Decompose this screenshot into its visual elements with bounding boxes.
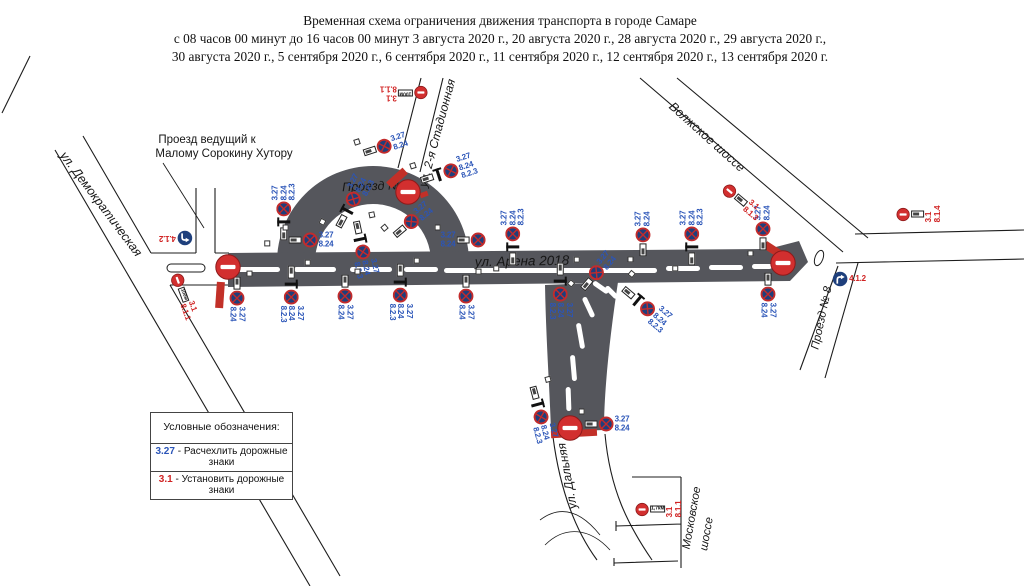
sign-post-marker (264, 240, 270, 246)
sign-code-label: 8.24 (643, 212, 652, 227)
no-entry-sign-icon (770, 250, 797, 277)
no-stopping-sign-icon (303, 233, 318, 248)
no-stopping-sign-icon (459, 289, 474, 304)
sign-code-label: 8.24 (760, 303, 769, 318)
street-label: Проезд ведущий к (158, 134, 255, 146)
info-plate-icon: 100м (178, 286, 190, 302)
sign-code-labels: 3.278.24 (760, 303, 777, 318)
info-plate-icon (342, 275, 349, 288)
info-plate-icon (510, 252, 517, 265)
traffic-sign-cluster: 4.1.2 (159, 230, 193, 246)
legend-header: Условные обозначения: (151, 413, 292, 443)
sign-code-label: 3.27 (345, 305, 354, 320)
traffic-sign-cluster: 100м3.18.1.1 (380, 85, 428, 102)
no-stopping-sign-icon (506, 226, 521, 241)
sign-code-label: 3.27 (404, 304, 413, 321)
sign-post-marker (748, 250, 754, 256)
sign-code-label: 8.24 (337, 305, 346, 320)
traffic-sign-cluster: 3.278.24 (635, 212, 652, 257)
sign-post-marker (247, 271, 253, 277)
traffic-sign-cluster: 3.278.24 (585, 416, 630, 433)
sign-code-labels: 4.1.2 (849, 275, 866, 284)
dark-roads (228, 166, 808, 432)
info-plate-icon (363, 146, 378, 157)
no-stopping-sign-icon (756, 221, 771, 236)
plate-text: 100м (179, 288, 188, 302)
plate-text: 100м (399, 91, 412, 96)
no-stopping-sign-icon (636, 227, 651, 242)
sign-code-label: 8.24 (287, 306, 296, 323)
sign-code-label: 8.24 (229, 307, 238, 322)
traffic-sign-cluster: 1,7км3.18.1.1 (635, 501, 683, 518)
sign-post-marker (283, 225, 289, 231)
sign-post-marker (435, 225, 441, 231)
traffic-sign-cluster: 3.18.1.4 (896, 206, 942, 223)
sign-code-labels: 3.278.24 (635, 212, 652, 227)
traffic-sign-cluster (557, 415, 584, 442)
traffic-sign-cluster: 3.278.24 (441, 232, 486, 249)
info-plate-icon (288, 266, 295, 279)
traffic-sign-cluster: 3.278.248.2.3 (500, 209, 526, 266)
sign-code-labels: 3.278.248.2.3 (679, 209, 705, 226)
info-plate-icon (689, 252, 696, 265)
legend-text-31: - Установить дорожные знаки (173, 474, 285, 497)
creek-lines (540, 512, 610, 550)
traffic-sign-cluster: 3.278.24 (760, 273, 777, 318)
road-moskovskoe (614, 477, 681, 568)
no-stopping-sign-icon (685, 226, 700, 241)
road-fragment-topleft (2, 56, 30, 113)
traffic-sign-cluster (215, 254, 242, 281)
island-east (813, 249, 826, 267)
mandatory-turn-sign-icon (177, 230, 193, 246)
info-plate-icon (911, 211, 924, 218)
traffic-scheme-page: Временная схема ограничения движения тра… (0, 0, 1024, 586)
info-plate-icon (529, 386, 539, 400)
no-stopping-sign-icon (599, 417, 614, 432)
street-label: Малому Сорокину Хутору (155, 148, 292, 160)
sign-code-label: 8.24 (556, 303, 565, 320)
no-entry-sign-icon (414, 86, 428, 100)
sign-code-label: 8.24 (458, 305, 467, 320)
legend-code-31: 3.1 (159, 474, 173, 485)
sign-code-label: 3.27 (466, 305, 475, 320)
traffic-sign-cluster: 3.278.24 (289, 232, 334, 249)
sign-code-label: 3.1 (380, 93, 397, 102)
info-plate-icon: 1,7км (650, 506, 665, 513)
traffic-sign-cluster: 3.278.248.2.3 (547, 263, 573, 320)
no-stopping-sign-icon (338, 289, 353, 304)
plate-text: 1,7км (651, 507, 664, 512)
island-west (167, 264, 205, 272)
sign-code-label: 8.2.3 (547, 303, 556, 320)
sign-code-label: 4.1.2 (849, 275, 866, 284)
mandatory-turn-sign-icon (832, 271, 848, 287)
legend-box: Условные обозначения: 3.27 - Расчехлить … (150, 412, 293, 500)
sign-code-label: 3.27 (564, 303, 573, 320)
no-entry-sign-icon (635, 502, 649, 516)
info-plate-icon (420, 173, 435, 184)
sign-code-labels: 3.278.24 (319, 232, 334, 249)
sign-post-marker (574, 257, 580, 263)
traffic-sign-cluster (770, 250, 797, 277)
info-plate-icon (463, 275, 470, 288)
info-plate-icon (557, 263, 564, 276)
sign-post-icon (507, 242, 520, 251)
sign-post-marker (414, 258, 420, 264)
traffic-sign-cluster: 4.1.2 (832, 271, 866, 287)
traffic-sign-cluster (395, 179, 422, 206)
sign-code-labels: 3.18.1.1 (666, 501, 683, 518)
sign-code-labels: 3.278.248.2.3 (387, 304, 413, 321)
sign-code-label: 8.2.3 (696, 209, 705, 226)
lane-markings (238, 264, 772, 411)
info-plate-icon (585, 421, 598, 428)
khutor-pointer-line (163, 163, 204, 228)
no-stopping-sign-icon (393, 288, 408, 303)
sign-post-icon (554, 277, 567, 286)
sign-code-labels: 3.278.24 (229, 307, 246, 322)
sign-code-label: 8.1.1 (675, 501, 684, 518)
sign-post-marker (305, 260, 311, 266)
no-stopping-sign-icon (761, 287, 776, 302)
sign-code-label: 8.24 (441, 240, 456, 249)
sign-code-labels: 3.278.24 (615, 416, 630, 433)
sign-code-labels: 3.278.248.2.3 (547, 303, 573, 320)
legend-code-327: 3.27 (155, 446, 174, 457)
sign-post-marker (476, 269, 482, 275)
traffic-sign-cluster: 3.278.248.2.3 (679, 209, 705, 266)
sign-code-labels: 3.278.24 (458, 305, 475, 320)
legend-item-install-signs: 3.1 - Установить дорожные знаки (151, 471, 292, 499)
sign-post-marker (355, 269, 361, 275)
sign-post-icon (394, 278, 407, 287)
traffic-sign-cluster: 3.278.248.2.3 (278, 266, 304, 323)
no-entry-sign-icon (395, 179, 422, 206)
no-entry-sign-icon (557, 415, 584, 442)
traffic-sign-cluster: 3.278.24 (458, 275, 475, 320)
sign-code-labels: 3.278.24 (441, 232, 456, 249)
no-stopping-sign-icon (284, 290, 299, 305)
no-entry-sign-icon (215, 254, 242, 281)
sign-code-label: 8.24 (319, 240, 334, 249)
info-plate-icon (760, 237, 767, 250)
info-plate-icon (580, 277, 594, 291)
sign-code-label: 8.24 (615, 424, 630, 433)
legend-item-uncover-signs: 3.27 - Расчехлить дорожные знаки (151, 443, 292, 471)
sign-code-labels: 3.18.1.1 (380, 85, 397, 102)
sign-code-label: 8.2.3 (278, 306, 287, 323)
sign-code-label: 8.2.3 (387, 304, 396, 321)
no-stopping-sign-icon (277, 201, 292, 216)
sign-post-marker (493, 265, 499, 271)
sign-code-labels: 3.18.1.4 (925, 206, 942, 223)
sign-code-label: 3.27 (295, 306, 304, 323)
no-entry-sign-icon (896, 207, 910, 221)
info-plate-icon (393, 224, 407, 238)
sign-code-labels: 3.278.248.2.3 (500, 209, 526, 226)
sign-code-label: 8.1.4 (934, 206, 943, 223)
sign-code-labels: 3.278.248.2.3 (271, 184, 297, 201)
sign-code-label: 8.2.3 (288, 184, 297, 201)
white-road-outlines (2, 56, 1024, 586)
sign-code-labels: 3.278.248.2.3 (278, 306, 304, 323)
sign-post-icon (285, 280, 298, 289)
traffic-sign-cluster: 3.278.24 (337, 275, 354, 320)
info-plate-icon (640, 243, 647, 256)
no-stopping-sign-icon (230, 291, 245, 306)
info-plate-icon (397, 264, 404, 277)
legend-text-327: - Расчехлить дорожные знаки (175, 446, 288, 469)
sign-post-marker (368, 211, 375, 218)
sign-code-label: 3.27 (237, 307, 246, 322)
sign-code-label: 8.24 (396, 304, 405, 321)
sign-post-icon (686, 242, 699, 251)
sign-post-marker (628, 256, 634, 262)
info-plate-icon (353, 220, 363, 234)
sign-code-labels: 4.1.2 (159, 234, 176, 243)
info-plate-icon (289, 237, 302, 244)
sign-code-labels: 3.278.24 (337, 305, 354, 320)
sign-code-label: 4.1.2 (159, 234, 176, 243)
sign-post-marker (672, 265, 678, 271)
no-stopping-sign-icon (553, 287, 568, 302)
info-plate-icon: 100м (398, 90, 413, 97)
traffic-sign-cluster: 3.278.24 (229, 277, 246, 322)
info-plate-icon (456, 237, 469, 244)
sign-code-label: 8.1.1 (380, 85, 397, 94)
no-stopping-sign-icon (470, 233, 485, 248)
traffic-sign-cluster: 3.278.248.2.3 (387, 264, 413, 321)
sign-code-label: 3.27 (768, 303, 777, 318)
sign-code-label: 8.2.3 (517, 209, 526, 226)
